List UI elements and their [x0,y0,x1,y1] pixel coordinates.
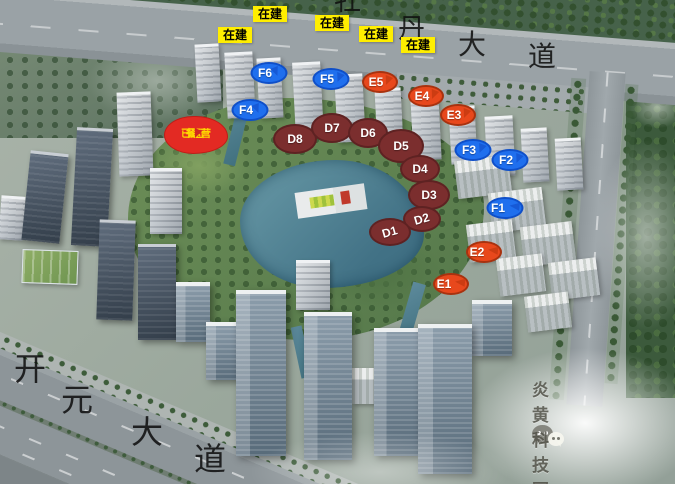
road-name-char: 道 [528,44,556,72]
marker-f4[interactable]: F4 [232,99,269,121]
building-block [150,168,182,234]
construction-label[interactable]: 在建 [253,6,287,22]
road-name-char: 大 [131,416,163,448]
marker-e1[interactable]: E1 [433,273,469,295]
tower-glass [176,282,210,342]
marker-d7[interactable]: D7 [311,113,353,143]
marker-f1[interactable]: F1 [487,197,524,219]
marker-d1[interactable]: D1 [369,218,411,246]
marker-f3[interactable]: F3 [455,139,492,161]
marker-f2[interactable]: F2 [492,149,529,171]
building-block [194,43,221,102]
fog [596,140,675,330]
building-block [296,260,330,310]
marker-e4[interactable]: E4 [408,85,444,107]
building-block [117,91,154,176]
office-building [496,253,546,296]
construction-label[interactable]: 在建 [315,15,349,31]
construction-label[interactable]: 在建 [218,27,252,43]
watermark-text: 炎黄科技园 [532,376,550,484]
marker-d4[interactable]: D4 [400,155,440,183]
pier-pavilion [340,190,351,204]
fog [250,432,510,484]
marker-d2-label: D2 [413,210,432,228]
aerial-site-map: 牡 丹 大 道 开 元 大 道 在建 在建 在建 在建 在建 F6 F5 F4 … [0,0,675,484]
road-name-char: 道 [194,443,226,475]
marker-e3[interactable]: E3 [440,104,476,126]
marker-f5[interactable]: F5 [313,68,350,90]
marker-e2[interactable]: E2 [466,241,502,263]
road-name-char: 开 [14,353,46,385]
tower-dark [138,244,176,340]
marker-restaurant[interactable]: 餐厅 已运营 [164,116,228,154]
road-name-char: 大 [458,32,486,60]
construction-label[interactable]: 在建 [401,37,435,53]
green-roof-building [21,249,78,285]
restaurant-line2: 已运营 [181,129,211,141]
building-block [555,137,584,190]
construction-label[interactable]: 在建 [359,26,393,42]
road-name-char: 牡 [334,0,361,15]
office-building [524,291,572,332]
marker-f6[interactable]: F6 [251,62,288,84]
tower-dark [21,150,68,243]
marker-e5[interactable]: E5 [362,71,398,93]
tower-dark [96,219,135,320]
marker-d3[interactable]: D3 [408,180,450,210]
road-name-char: 元 [61,384,93,416]
marker-d1-label: D1 [381,223,400,241]
